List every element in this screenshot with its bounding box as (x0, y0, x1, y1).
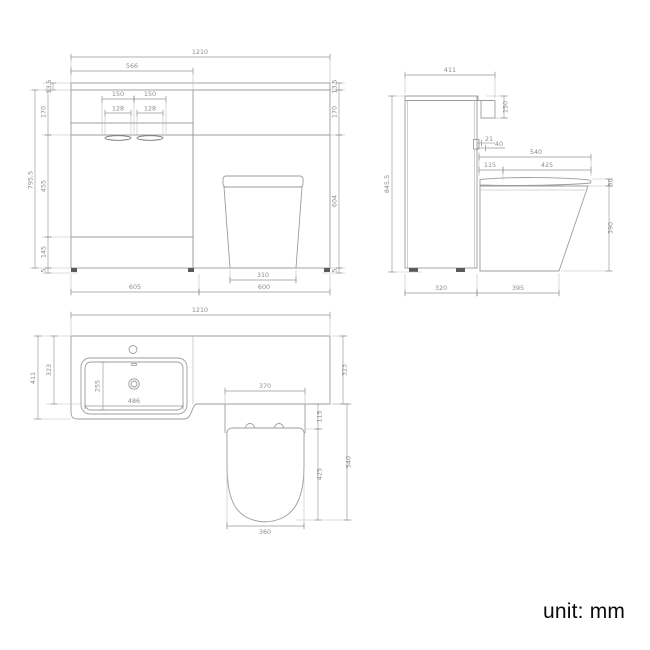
dim-plan-seat-length: 425 (316, 468, 324, 480)
foot (188, 268, 194, 272)
dim-plan-worktop-depth-right: 323 (341, 364, 349, 376)
dim-front-cutout-left: 128 (112, 105, 124, 113)
front-elevation-view: 1210 566 150 150 128 128 13,5 170 795,5 … (27, 48, 346, 295)
dim-front-vanity-base: 605 (129, 283, 141, 291)
dim-side-seat-length: 425 (541, 161, 553, 169)
dimension-sheet: 1210 566 150 150 128 128 13,5 170 795,5 … (0, 0, 650, 650)
dim-front-cutout-right: 128 (144, 105, 156, 113)
plan-view: 1210 411 323 323 486 255 370 115 425 540… (29, 306, 353, 536)
dim-side-cabinet-depth: 320 (435, 284, 447, 292)
dim-side-depth: 411 (444, 66, 456, 74)
dim-front-overall-width: 1210 (192, 48, 208, 56)
waste-inner (131, 381, 137, 387)
dim-side-clip2: 40 (495, 140, 503, 148)
dim-front-vanity-width: 566 (126, 62, 138, 70)
flush-clip (474, 140, 480, 150)
dim-side-seat-inset: 115 (484, 161, 496, 169)
cabinet-side (405, 96, 477, 268)
unit-label: unit: mm (543, 600, 643, 624)
dim-plan-hinge-inset: 115 (316, 410, 324, 422)
toilet-seat-plan (227, 428, 304, 522)
tap-hole (129, 346, 137, 354)
dim-side-clip: 21 (485, 135, 493, 143)
side-elevation-view: 411 845,5 150 21 40 540 115 425 30 390 3… (383, 66, 615, 296)
dim-plan-worktop-depth-left: 323 (45, 364, 53, 376)
dim-side-pan-height: 390 (607, 222, 615, 234)
dim-front-wc-base: 600 (258, 283, 270, 291)
dim-front-overall-height: 795,5 (27, 171, 35, 189)
dim-side-splash-drop: 150 (502, 101, 510, 113)
dim-front-rail-right: 170 (331, 106, 339, 118)
dim-front-pan-width: 310 (257, 271, 269, 279)
dim-plan-vanity-depth: 411 (29, 372, 37, 384)
fluted-panel-left (71, 123, 193, 268)
dim-side-pan-projection: 395 (512, 284, 524, 292)
toilet-pan-side (480, 186, 588, 271)
dim-plan-basin-depth: 255 (94, 380, 102, 392)
dim-side-seat-thickness: 30 (607, 178, 615, 186)
technical-drawing: 1210 566 150 150 128 128 13,5 170 795,5 … (0, 0, 650, 650)
dim-front-handle-right: 150 (144, 90, 156, 98)
foot (409, 268, 418, 272)
dim-front-foot-right: 5 (331, 268, 339, 272)
seat-hinge-right (275, 424, 284, 429)
dim-side-overall-height: 845,5 (383, 175, 391, 193)
dim-side-pan-depth: 540 (530, 148, 542, 156)
dim-front-worktop-left: 13,5 (45, 79, 53, 93)
handle-recess-right (137, 136, 163, 141)
dim-plan-basin-width: 486 (128, 397, 140, 405)
worktop-edge (71, 83, 330, 90)
dim-front-panel-height: 604 (331, 195, 339, 207)
dim-front-rail-left: 170 (40, 106, 48, 118)
dim-plan-pan-width: 370 (259, 382, 271, 390)
seat-hinge-left (246, 424, 255, 429)
toilet-seat-side (480, 178, 591, 186)
worktop-drop-panel (481, 101, 495, 119)
dim-plan-overall-width: 1210 (192, 306, 208, 314)
handle-recess-left (105, 136, 131, 141)
foot (324, 268, 330, 272)
dim-plan-seat-width: 360 (259, 528, 271, 536)
foot (71, 268, 77, 272)
vanity-front-panel (71, 90, 193, 123)
dim-front-foot-left: 5 (40, 268, 48, 272)
dim-front-handle-left: 150 (112, 90, 124, 98)
dim-front-plinth-height: 145 (40, 246, 48, 258)
dim-front-worktop-right: 13,5 (331, 79, 339, 93)
dim-plan-pan-depth: 540 (345, 456, 353, 468)
toilet-seat-front (223, 176, 303, 187)
dim-front-door-height: 455 (40, 180, 48, 192)
toilet-pan-front (224, 187, 302, 268)
foot (456, 268, 465, 272)
